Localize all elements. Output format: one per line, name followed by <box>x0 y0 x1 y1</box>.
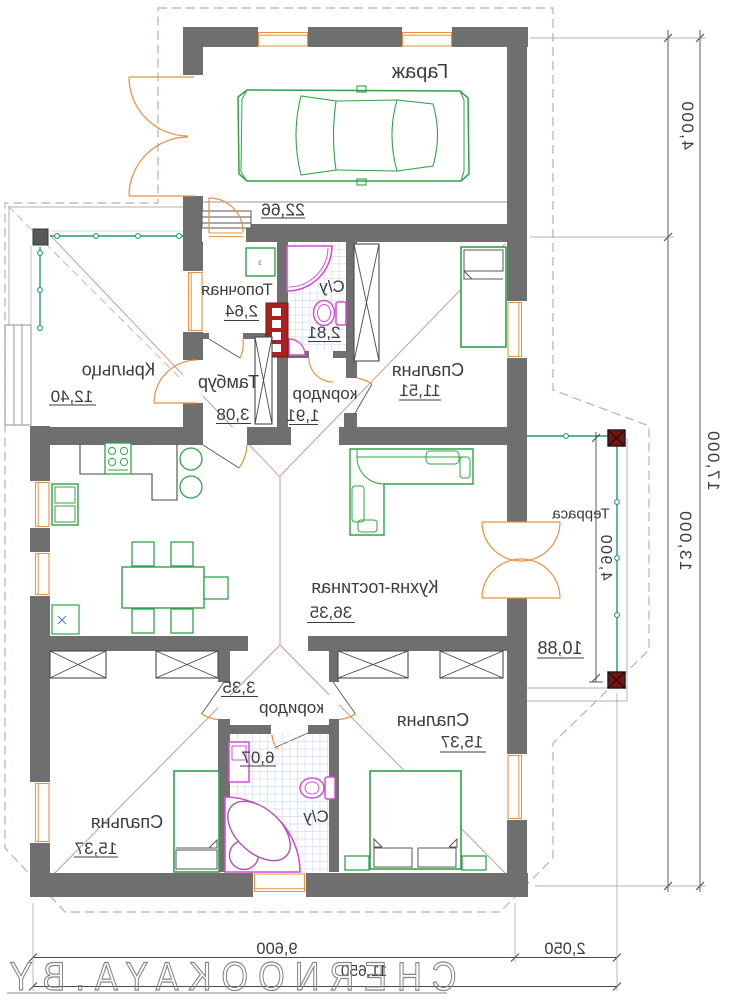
svg-text:15,37: 15,37 <box>441 733 484 752</box>
svg-text:4,000: 4,000 <box>678 100 697 150</box>
svg-text:Тамбур: Тамбур <box>198 372 259 392</box>
svg-text:з: з <box>258 258 262 267</box>
svg-text:Кухня-гостиная: Кухня-гостиная <box>311 577 438 597</box>
svg-text:13,000: 13,000 <box>676 510 695 571</box>
svg-text:коридор: коридор <box>293 384 358 403</box>
svg-text:Спальня: Спальня <box>91 812 163 832</box>
svg-text:10,88: 10,88 <box>537 638 582 658</box>
svg-text:Крыльцо: Крыльцо <box>82 360 155 380</box>
svg-text:1,91: 1,91 <box>286 406 319 425</box>
svg-text:4,900: 4,900 <box>597 533 614 581</box>
svg-text:Гараж: Гараж <box>391 61 448 83</box>
svg-text:22,66: 22,66 <box>261 200 305 220</box>
svg-text:Терраса: Терраса <box>552 506 610 523</box>
svg-text:С/у: С/у <box>319 277 345 296</box>
svg-text:Спальня: Спальня <box>397 710 469 730</box>
svg-text:С/у: С/у <box>303 807 329 826</box>
svg-text:36,35: 36,35 <box>310 603 353 622</box>
svg-text:Спальня: Спальня <box>392 360 464 380</box>
svg-text:6,07: 6,07 <box>241 748 274 767</box>
svg-text:12,40: 12,40 <box>51 387 94 406</box>
svg-text:3,35: 3,35 <box>222 678 255 697</box>
svg-text:15,37: 15,37 <box>75 839 118 858</box>
svg-text:CHERNOOKAYA.BY: CHERNOOKAYA.BY <box>0 953 456 998</box>
svg-text:Топочная: Топочная <box>201 281 273 299</box>
svg-text:17,000: 17,000 <box>704 430 723 491</box>
svg-text:2,81: 2,81 <box>307 323 340 342</box>
svg-text:11,51: 11,51 <box>399 381 440 400</box>
svg-text:2,050: 2,050 <box>544 940 585 958</box>
svg-text:коридор: коридор <box>259 698 324 717</box>
svg-text:2,64: 2,64 <box>225 302 258 321</box>
svg-text:3,08: 3,08 <box>216 405 249 424</box>
